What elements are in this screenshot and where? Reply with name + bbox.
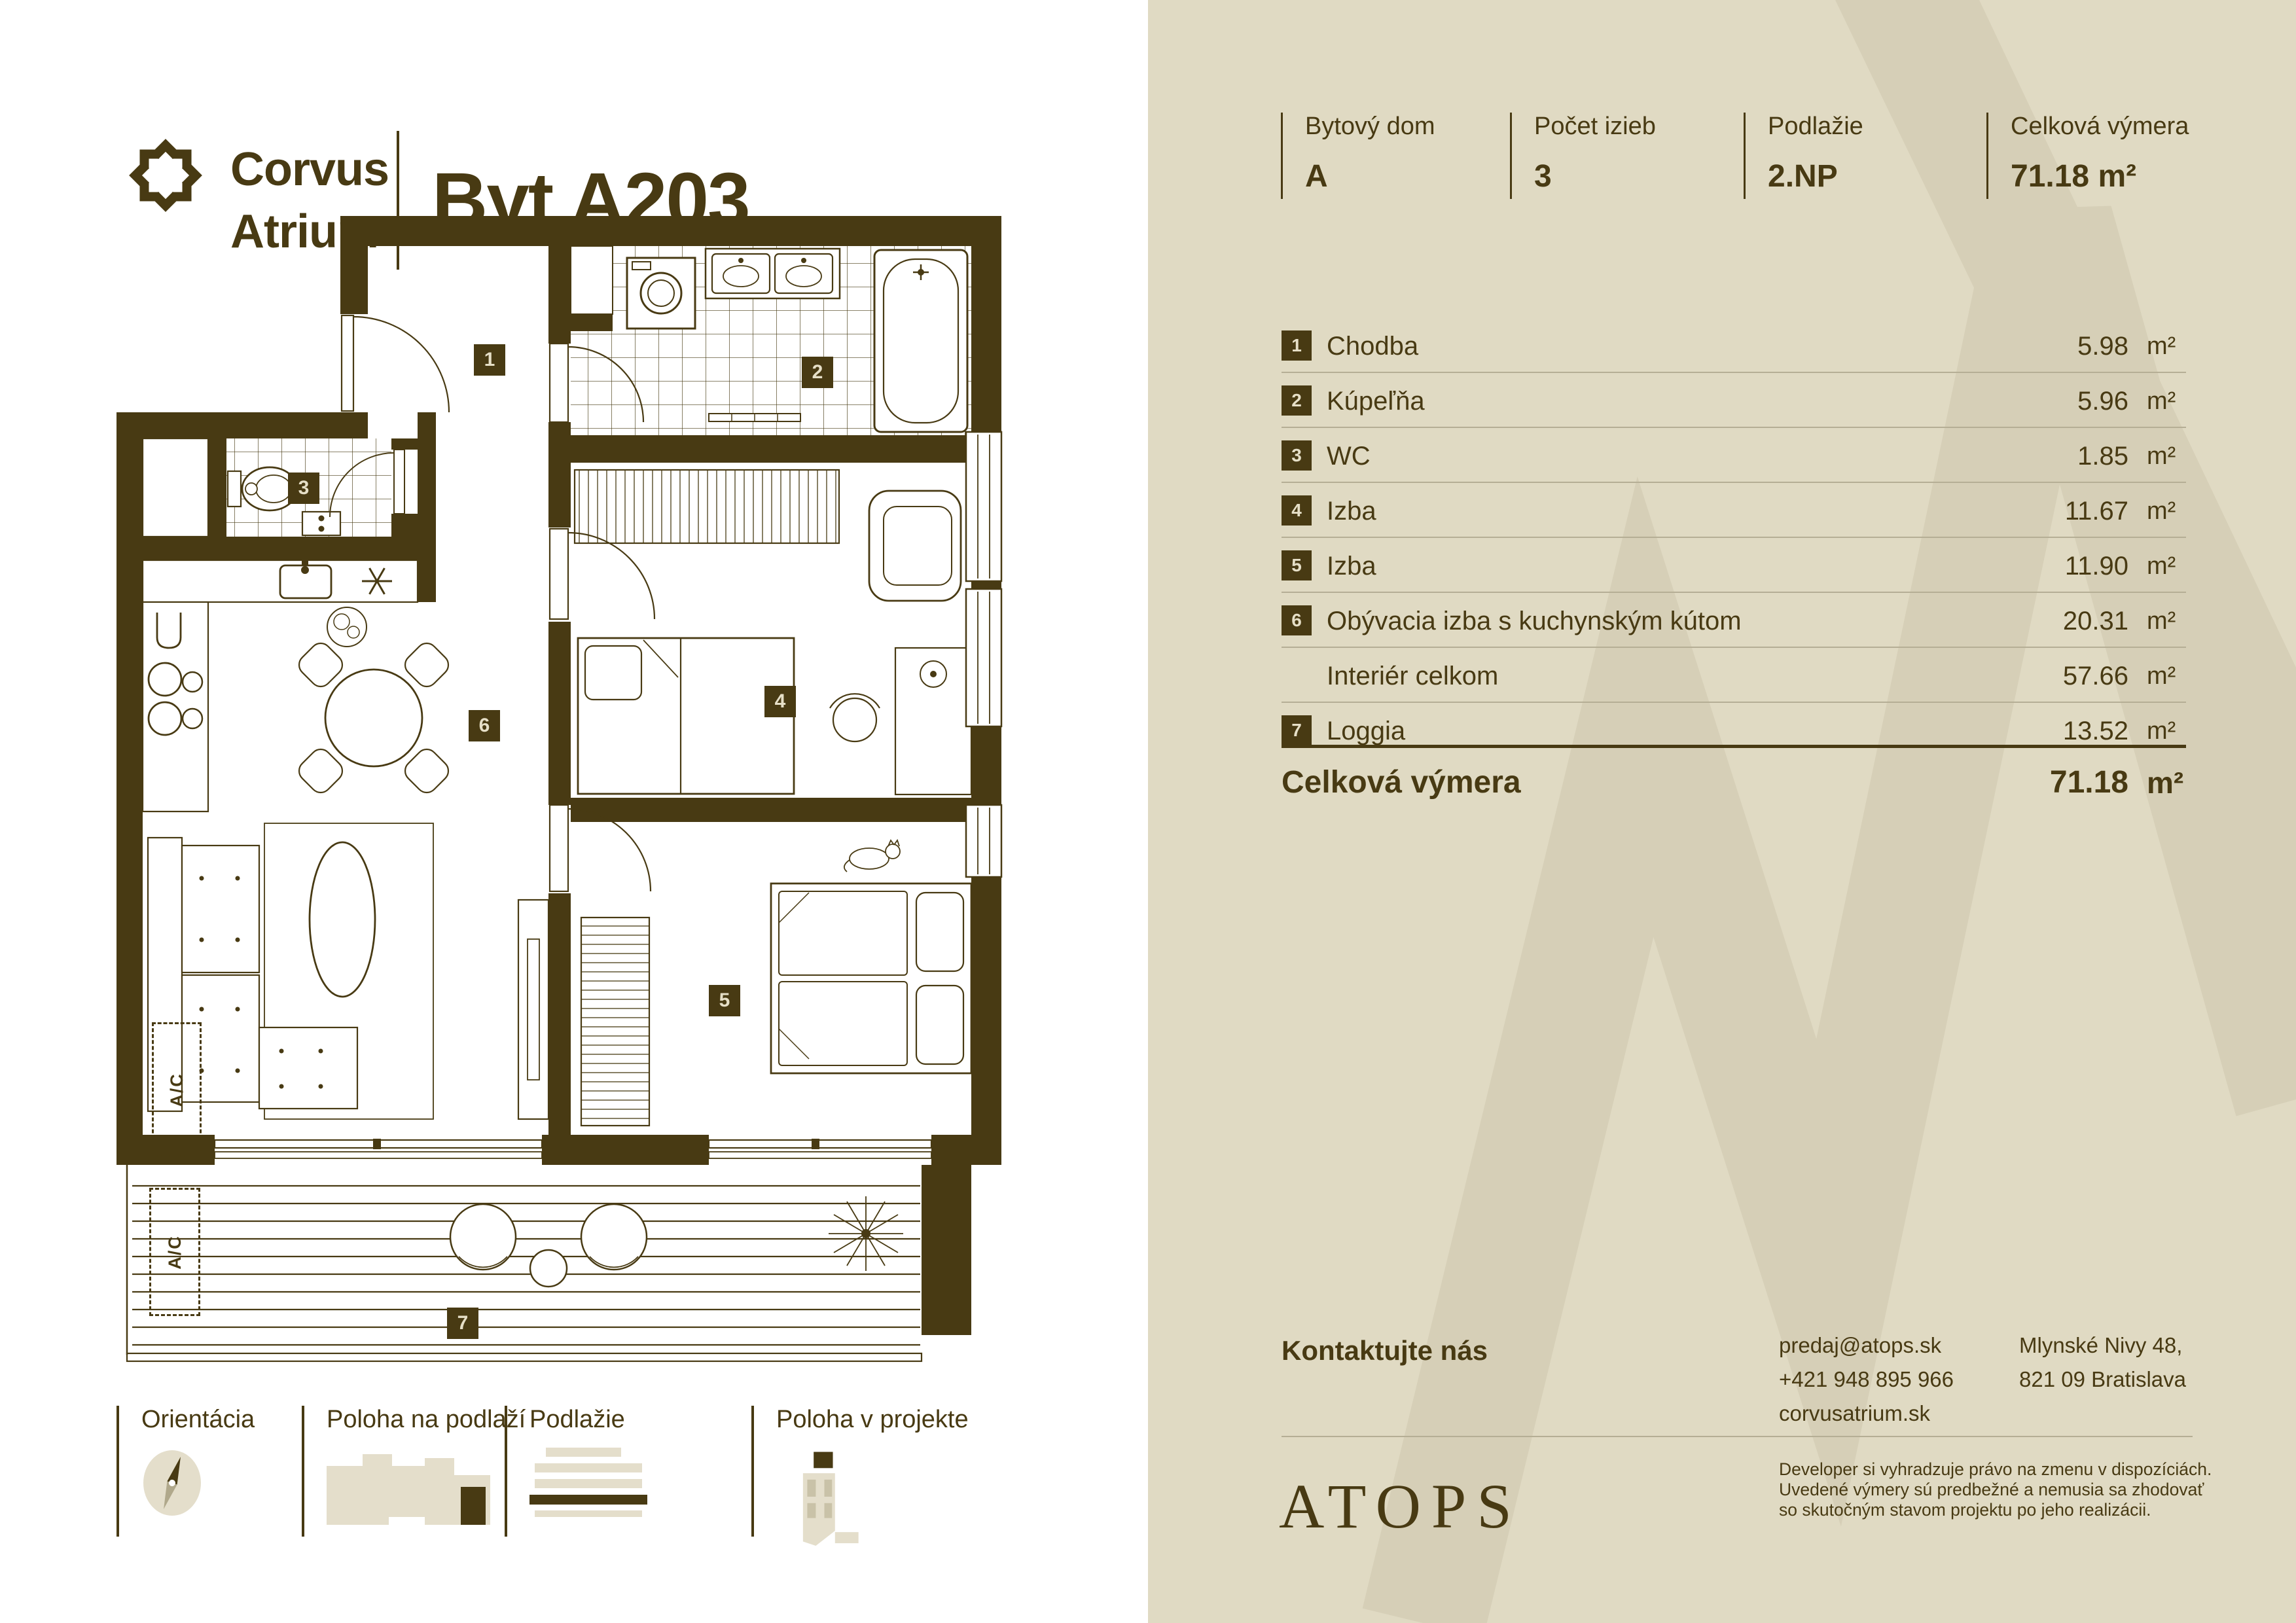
loggia-deck [127,1165,922,1361]
room-badge-1: 1 [474,344,505,376]
row-badge: 1 [1282,330,1312,361]
table-row-interior-total: Interiér celkom 57.66 m² [1148,660,2296,694]
disclaimer-line2: Uvedené výmery sú predbežné a nemusia sa… [1779,1480,2212,1500]
row-badge: 2 [1282,385,1312,416]
legend-floor-level: Podlažie [505,1406,647,1537]
row-badge: 3 [1282,440,1312,471]
header-label: Celková výmera [2011,113,2189,140]
row-label: Chodba [1327,331,1418,361]
legend-label: Poloha na podlaží [327,1406,526,1433]
compass-icon [141,1448,204,1518]
room-badge-2: 2 [802,357,833,388]
legend-project-position: Poloha v projekte [751,1406,969,1537]
header-label: Podlažie [1768,113,1863,140]
row-divider [1282,647,2186,648]
living-room-furniture [148,823,548,1119]
row-divider [1282,427,2186,428]
row-badge: 7 [1282,715,1312,745]
row-area: 1.85 [1933,441,2128,471]
left-panel: Corvus Atrium Byt A203 [0,0,1148,1623]
bedroom-4-furniture [575,470,971,794]
table-row: 2 Kúpeľňa 5.96 m² [1148,385,2296,419]
plant-icon [829,1196,903,1271]
header-value: 3 [1534,158,1656,194]
disclaimer: Developer si vyhradzuje právo na zmenu v… [1779,1459,2212,1520]
total-area: 71.18 [1901,764,2128,801]
disclaimer-line3: so skutočným stavom projektu po jeho rea… [1779,1500,2212,1520]
row-divider [1282,482,2186,483]
legend-label: Orientácia [141,1406,255,1433]
address-line2: 821 09 Bratislava [2019,1363,2186,1397]
row-unit: m² [2147,716,2176,746]
legend-label: Podlažie [529,1406,647,1433]
room-badge-3: 3 [288,473,319,504]
header-value: 2.NP [1768,158,1863,194]
cat-icon [844,840,900,872]
table-row: 5 Izba 11.90 m² [1148,550,2296,584]
row-area: 57.66 [1933,661,2128,691]
row-unit: m² [2147,496,2176,526]
header-value: A [1305,158,1435,194]
legend-orientation: Orientácia [117,1406,255,1537]
contact-email: predaj@atops.sk [1779,1329,1954,1363]
corvus-logo-icon [117,126,215,224]
row-area: 11.67 [1933,496,2128,526]
contact-heading: Kontaktujte nás [1282,1335,1488,1366]
room-badge-7: 7 [447,1308,478,1339]
total-row: Celková výmera 71.18 m² [1148,764,2296,804]
table-row: 6 Obývacia izba s kuchynským kútom 20.31… [1148,605,2296,639]
ac-label: A/C [165,1235,185,1270]
floor-plan: 1 2 3 4 5 6 7 A/C A/C [117,216,1007,1368]
header-col-rooms: Počet izieb 3 [1510,113,1656,199]
row-area: 20.31 [1933,606,2128,636]
row-divider [1282,537,2186,538]
row-label: Izba [1327,496,1376,526]
legend-label: Poloha v projekte [776,1406,969,1433]
total-unit: m² [2147,764,2183,801]
project-position-icon [776,1448,881,1546]
row-area: 13.52 [1933,716,2128,746]
row-unit: m² [2147,661,2176,691]
floor-position-icon [327,1448,490,1525]
header-label: Bytový dom [1305,113,1435,140]
row-area: 11.90 [1933,551,2128,581]
address-line1: Mlynské Nivy 48, [2019,1329,2186,1363]
row-label: Interiér celkom [1327,661,1498,691]
room-badge-5: 5 [709,985,740,1016]
table-row: 4 Izba 11.67 m² [1148,495,2296,529]
row-badge: 4 [1282,495,1312,526]
header-value: 71.18 m² [2011,158,2189,194]
contact-phone: +421 948 895 966 [1779,1363,1954,1397]
header-col-building: Bytový dom A [1281,113,1435,199]
logo-line1: Corvus [230,139,389,201]
header-col-floor: Podlažie 2.NP [1744,113,1863,199]
row-divider [1282,372,2186,373]
row-unit: m² [2147,551,2176,581]
header-col-total-area: Celková výmera 71.18 m² [1986,113,2189,199]
row-label: WC [1327,441,1371,471]
disclaimer-line1: Developer si vyhradzuje právo na zmenu v… [1779,1459,2212,1480]
ac-label: A/C [167,1073,187,1107]
room-badge-6: 6 [469,710,500,741]
row-label: Loggia [1327,716,1405,746]
right-panel: Bytový dom A Počet izieb 3 Podlažie 2.NP… [1148,0,2296,1623]
table-row: 1 Chodba 5.98 m² [1148,330,2296,365]
legend-floor-position: Poloha na podlaží [302,1406,526,1537]
row-unit: m² [2147,331,2176,361]
ac-unit-loggia: A/C [149,1188,200,1316]
room-badge-4: 4 [764,686,796,717]
table-row: 3 WC 1.85 m² [1148,440,2296,474]
row-unit: m² [2147,386,2176,416]
row-unit: m² [2147,441,2176,471]
row-badge: 5 [1282,550,1312,580]
row-label: Izba [1327,551,1376,581]
total-divider [1282,745,2186,748]
row-divider [1282,592,2186,593]
row-label: Kúpeľňa [1327,386,1425,416]
dining-set [295,639,452,796]
footer-divider [1282,1436,2193,1437]
total-label: Celková výmera [1282,764,1521,801]
atops-brand-logo: ATOPS [1279,1470,1522,1543]
header-label: Počet izieb [1534,113,1656,140]
ac-unit-living: A/C [152,1022,202,1157]
contact-address: Mlynské Nivy 48, 821 09 Bratislava [2019,1329,2186,1397]
floor-level-icon [529,1448,647,1517]
contact-web: corvusatrium.sk [1779,1397,1954,1431]
row-divider [1282,702,2186,703]
row-unit: m² [2147,606,2176,636]
row-badge: 6 [1282,605,1312,635]
bedroom-5-furniture [581,840,971,1126]
row-area: 5.96 [1933,386,2128,416]
contact-details: predaj@atops.sk +421 948 895 966 corvusa… [1779,1329,1954,1431]
row-area: 5.98 [1933,331,2128,361]
floor-plan-drawing [117,216,1007,1368]
row-label: Obývacia izba s kuchynským kútom [1327,606,1742,636]
